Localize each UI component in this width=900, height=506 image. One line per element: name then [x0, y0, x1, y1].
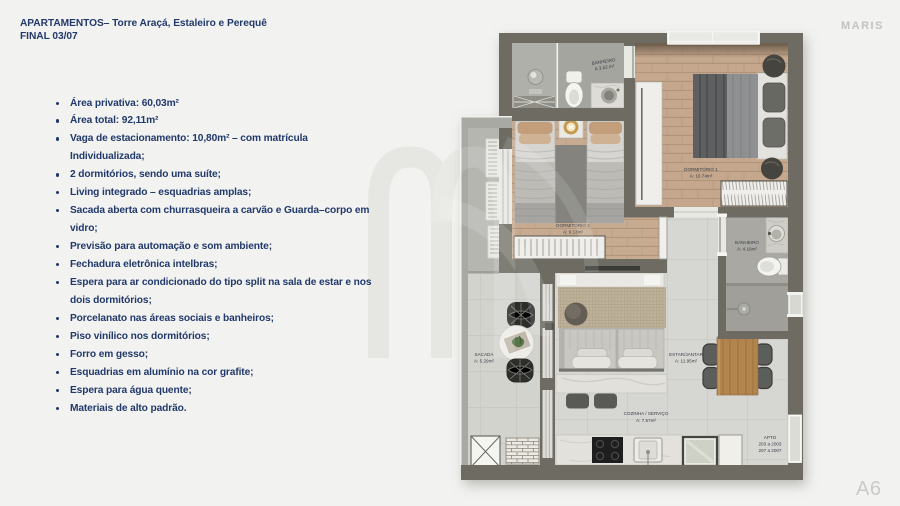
svg-text:A: 7.57m²: A: 7.57m²	[636, 418, 656, 423]
svg-text:A: 5.29m²: A: 5.29m²	[474, 359, 494, 364]
svg-text:APTO: APTO	[764, 435, 777, 440]
svg-text:DORMITÓRIO 1: DORMITÓRIO 1	[684, 166, 718, 172]
svg-text:A: 10.74m²: A: 10.74m²	[690, 174, 713, 179]
svg-text:A: 11.95m²: A: 11.95m²	[675, 359, 698, 364]
svg-text:ESTAR/JANTAR: ESTAR/JANTAR	[669, 352, 703, 357]
svg-text:A: 4.19m²: A: 4.19m²	[737, 247, 757, 252]
svg-text:COZINHA / SERVIÇO: COZINHA / SERVIÇO	[624, 411, 669, 416]
svg-text:203 a 2003: 203 a 2003	[759, 442, 782, 447]
svg-text:207 a 2007: 207 a 2007	[759, 448, 782, 453]
svg-text:BANHEIRO: BANHEIRO	[735, 240, 759, 245]
svg-text:SACADA: SACADA	[475, 352, 495, 357]
